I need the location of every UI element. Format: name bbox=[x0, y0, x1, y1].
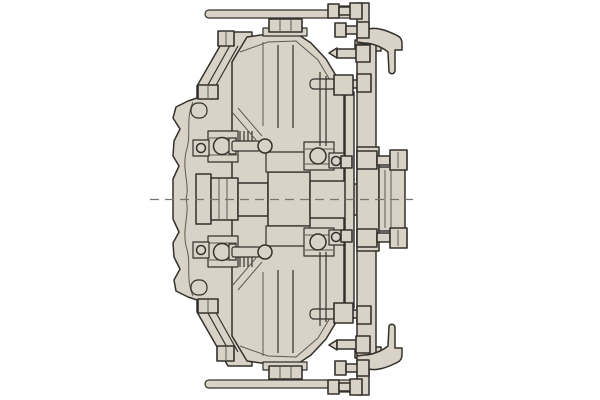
bearing-ball-icon bbox=[214, 244, 231, 261]
screenshot-canvas bbox=[0, 0, 600, 400]
clutch-cross-section-diagram bbox=[0, 0, 600, 400]
center-bolt-top bbox=[263, 19, 307, 36]
ball-pin-lower bbox=[229, 244, 272, 260]
center-bolt-bottom bbox=[263, 362, 307, 379]
bearing-ball-icon bbox=[310, 148, 326, 164]
bearing-ball-icon bbox=[310, 234, 326, 250]
bearing-ball-icon bbox=[214, 138, 231, 155]
